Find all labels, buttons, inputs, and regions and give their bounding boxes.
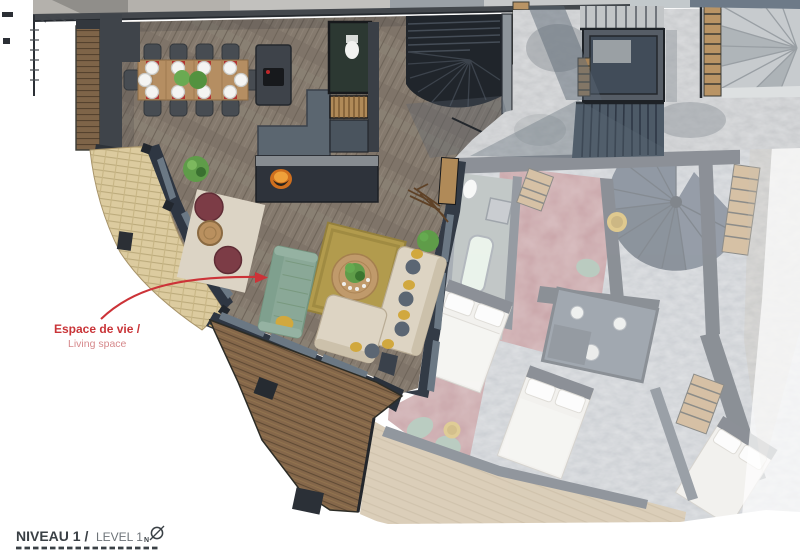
svg-text:Espace de vie /: Espace de vie /: [54, 322, 141, 336]
svg-text:Living space: Living space: [68, 338, 127, 350]
svg-text:NIVEAU 1 /: NIVEAU 1 /: [16, 528, 88, 544]
svg-text:N: N: [144, 537, 149, 544]
svg-text:LEVEL 1: LEVEL 1: [96, 530, 143, 544]
